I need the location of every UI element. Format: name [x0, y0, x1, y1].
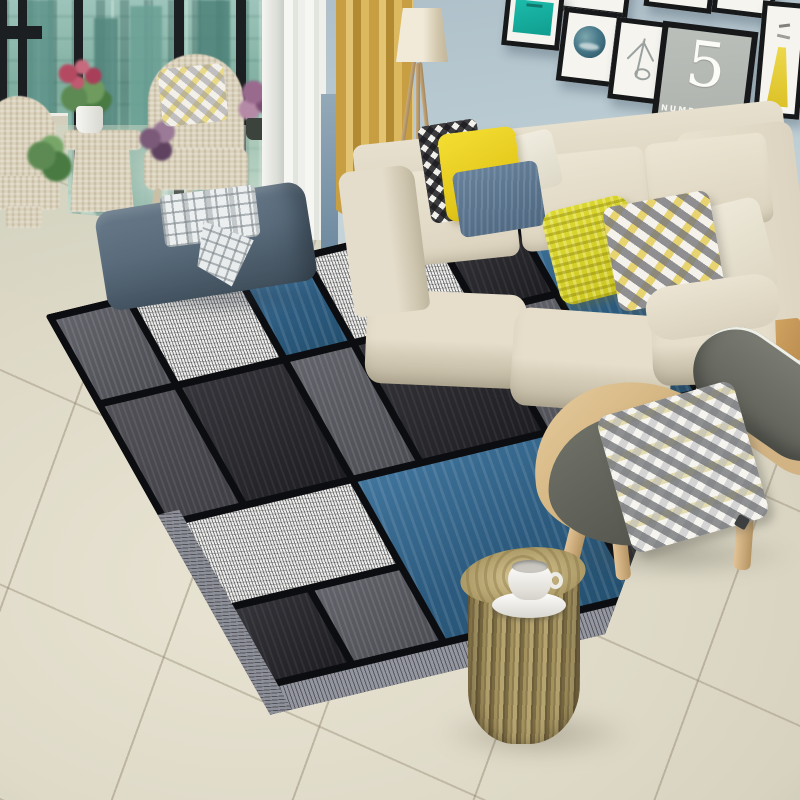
floor-lamp-shade	[396, 8, 448, 62]
wicker-side-table-base	[70, 148, 134, 212]
green-foliage	[24, 134, 74, 188]
window-crossbar	[0, 26, 42, 39]
red-orchid-flowers	[54, 56, 110, 100]
wicker-armchair-left-legs	[6, 206, 42, 228]
figure-sketch-line	[778, 23, 789, 27]
circle-landscape-art	[572, 24, 608, 60]
antler-sketch-line	[642, 41, 654, 62]
living-room-photo: 5 NUMBERFIVE	[0, 0, 800, 800]
yellow-dress-art	[766, 46, 793, 107]
number-five-digit: 5	[661, 29, 752, 101]
wicker-chair-triangle-pillow	[157, 63, 229, 128]
teal-art-print	[513, 0, 554, 36]
blue-curtain-panel	[321, 94, 338, 254]
blue-gray-pillow	[451, 160, 546, 239]
teal-art-title-marks	[527, 3, 542, 8]
antler-sketch-head	[634, 68, 651, 82]
gallery-frame-teal	[501, 0, 565, 51]
coffee-cup-rim	[512, 560, 548, 573]
white-plant-pot	[76, 106, 103, 133]
wicker-side-table	[64, 130, 142, 150]
figure-sketch-line	[776, 33, 789, 39]
